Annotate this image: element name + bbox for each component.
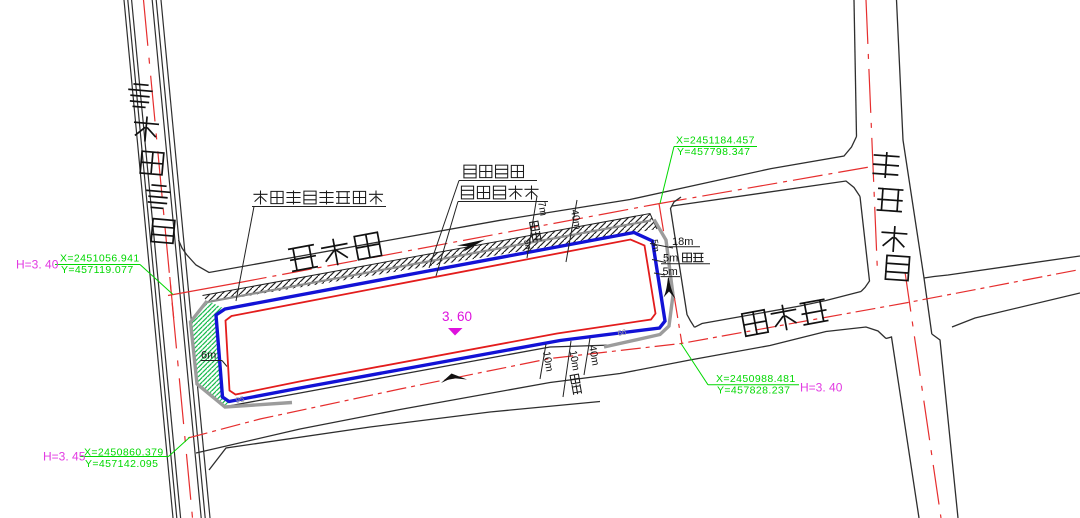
svg-text:3. 60: 3. 60 <box>442 309 472 324</box>
svg-text:X=2451056.941: X=2451056.941 <box>60 253 140 265</box>
svg-text:Y=457828.237: Y=457828.237 <box>717 385 790 397</box>
svg-text:Y=457798.347: Y=457798.347 <box>677 146 750 158</box>
svg-text:Y=457119.077: Y=457119.077 <box>61 264 134 276</box>
svg-text:6m: 6m <box>201 350 216 362</box>
svg-text:Y=457142.095: Y=457142.095 <box>85 458 158 470</box>
svg-text:5m: 5m <box>663 253 678 265</box>
svg-text:5m: 5m <box>663 266 678 278</box>
svg-text:7m: 7m <box>535 200 549 217</box>
svg-text:H=3. 40: H=3. 40 <box>800 381 843 395</box>
svg-text:18m: 18m <box>672 236 693 248</box>
svg-text:5m: 5m <box>522 239 534 253</box>
svg-text:X=2451184.457: X=2451184.457 <box>676 135 755 147</box>
svg-text:X=2450988.481: X=2450988.481 <box>716 373 796 385</box>
svg-text:H=3. 40: H=3. 40 <box>16 258 59 272</box>
svg-text:H=3. 45: H=3. 45 <box>43 450 86 464</box>
